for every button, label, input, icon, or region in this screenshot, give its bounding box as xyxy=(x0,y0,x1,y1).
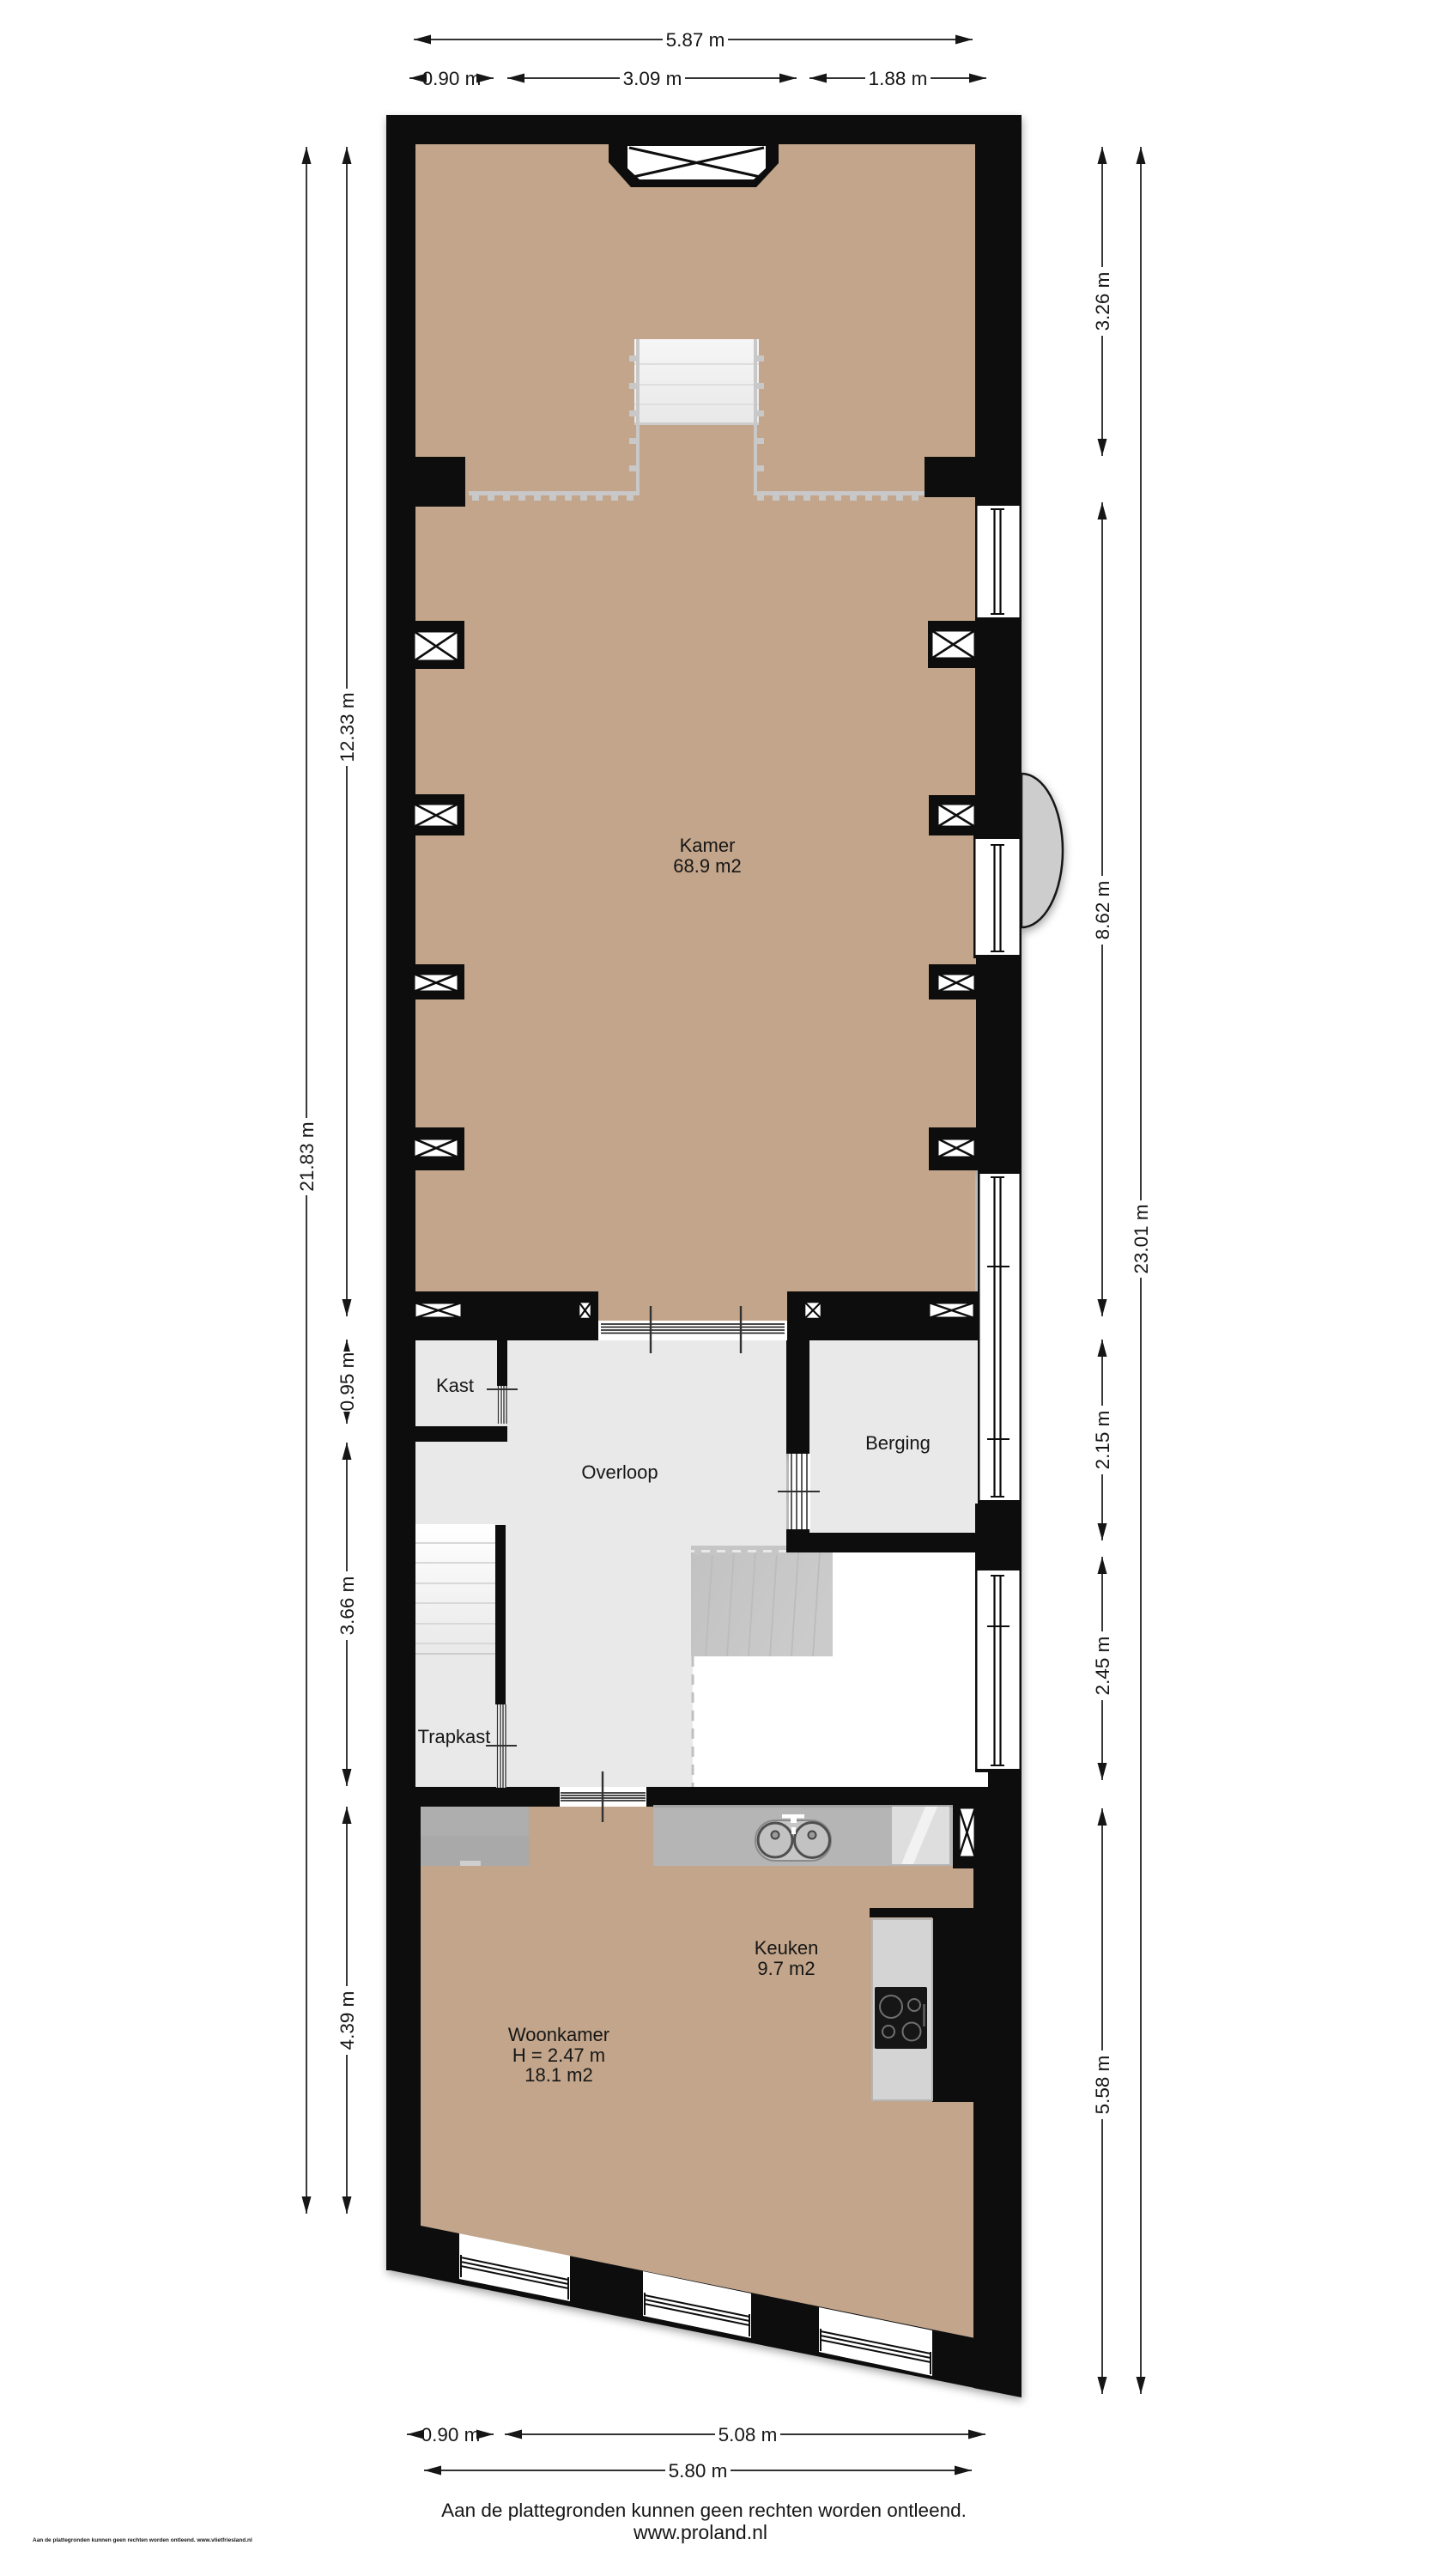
svg-text:23.01 m: 23.01 m xyxy=(1131,1204,1152,1273)
svg-text:4.39 m: 4.39 m xyxy=(336,1991,358,2050)
svg-text:Keuken: Keuken xyxy=(755,1937,819,1959)
svg-text:5.80 m: 5.80 m xyxy=(669,2460,728,2482)
svg-text:Aan de plattegronden kunnen ge: Aan de plattegronden kunnen geen rechten… xyxy=(33,2537,252,2543)
svg-text:8.62 m: 8.62 m xyxy=(1092,881,1113,940)
svg-text:21.83 m: 21.83 m xyxy=(296,1121,318,1191)
svg-text:68.9 m2: 68.9 m2 xyxy=(673,855,742,877)
svg-text:9.7 m2: 9.7 m2 xyxy=(757,1958,815,1979)
svg-text:Berging: Berging xyxy=(865,1432,931,1454)
svg-text:0.95 m: 0.95 m xyxy=(336,1352,358,1412)
svg-text:2.45 m: 2.45 m xyxy=(1092,1637,1113,1696)
svg-text:Aan de plattegronden kunnen ge: Aan de plattegronden kunnen geen rechten… xyxy=(441,2500,967,2521)
svg-text:0.90 m: 0.90 m xyxy=(421,2424,481,2445)
svg-text:3.09 m: 3.09 m xyxy=(623,68,682,89)
svg-text:2.15 m: 2.15 m xyxy=(1092,1411,1113,1470)
svg-text:12.33 m: 12.33 m xyxy=(336,692,358,762)
svg-text:18.1 m2: 18.1 m2 xyxy=(524,2064,593,2086)
svg-text:Trapkast: Trapkast xyxy=(418,1726,491,1747)
svg-text:www.proland.nl: www.proland.nl xyxy=(633,2521,767,2543)
svg-text:0.90 m: 0.90 m xyxy=(422,68,482,89)
svg-text:3.26 m: 3.26 m xyxy=(1092,272,1113,331)
svg-text:5.58 m: 5.58 m xyxy=(1092,2056,1113,2115)
svg-text:5.08 m: 5.08 m xyxy=(718,2424,778,2445)
svg-text:Kamer: Kamer xyxy=(680,835,736,856)
svg-text:Overloop: Overloop xyxy=(581,1461,658,1483)
svg-text:Kast: Kast xyxy=(436,1375,474,1396)
svg-text:3.66 m: 3.66 m xyxy=(336,1577,358,1636)
svg-text:1.88 m: 1.88 m xyxy=(869,68,928,89)
svg-text:5.87 m: 5.87 m xyxy=(666,29,725,51)
svg-text:Woonkamer: Woonkamer xyxy=(508,2024,609,2045)
svg-text:H = 2.47 m: H = 2.47 m xyxy=(512,2044,605,2066)
